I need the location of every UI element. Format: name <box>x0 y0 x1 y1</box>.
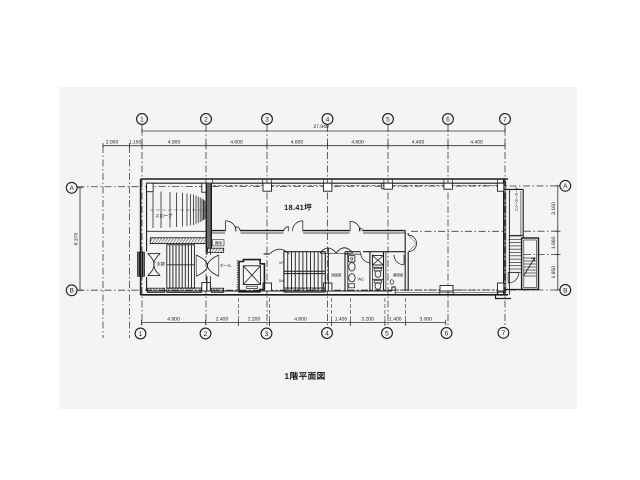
svg-text:UP: UP <box>279 261 284 265</box>
svg-text:洗面室: 洗面室 <box>331 273 342 278</box>
svg-text:1.150: 1.150 <box>129 140 142 146</box>
svg-text:6: 6 <box>446 116 450 123</box>
svg-text:DN: DN <box>279 279 284 283</box>
svg-text:27.940: 27.940 <box>313 124 329 130</box>
svg-text:4: 4 <box>326 116 330 123</box>
svg-text:2: 2 <box>204 331 208 338</box>
svg-text:4.600: 4.600 <box>294 316 307 322</box>
svg-text:4.600: 4.600 <box>351 140 364 146</box>
svg-text:6: 6 <box>445 330 449 337</box>
svg-text:1.400: 1.400 <box>389 316 402 322</box>
svg-text:3.160: 3.160 <box>551 202 557 215</box>
svg-text:1階平面図: 1階平面図 <box>284 371 325 381</box>
svg-text:2.400: 2.400 <box>216 316 229 322</box>
svg-text:6.370: 6.370 <box>74 233 80 246</box>
svg-text:3.000: 3.000 <box>419 316 432 322</box>
svg-text:2: 2 <box>204 116 208 123</box>
svg-text:4.400: 4.400 <box>412 140 425 146</box>
svg-text:3: 3 <box>265 331 269 338</box>
svg-text:5: 5 <box>386 116 390 123</box>
svg-text:1.400: 1.400 <box>335 316 348 322</box>
svg-text:3.200: 3.200 <box>361 316 374 322</box>
svg-text:2.200: 2.200 <box>248 316 261 322</box>
svg-text:ホール: ホール <box>220 263 232 268</box>
svg-text:4: 4 <box>325 330 329 337</box>
svg-text:1: 1 <box>140 116 144 123</box>
svg-text:18.41坪: 18.41坪 <box>284 203 312 212</box>
svg-text:4.400: 4.400 <box>470 140 483 146</box>
svg-text:4.600: 4.600 <box>230 140 243 146</box>
svg-text:5: 5 <box>385 330 389 337</box>
svg-text:3: 3 <box>265 116 269 123</box>
svg-text:2.000: 2.000 <box>106 140 119 146</box>
svg-text:1: 1 <box>139 331 143 338</box>
svg-text:A: A <box>69 185 74 192</box>
svg-text:スロープ: スロープ <box>155 213 173 218</box>
svg-text:7: 7 <box>503 116 507 123</box>
svg-text:風除: 風除 <box>215 241 223 246</box>
svg-text:7: 7 <box>502 330 506 337</box>
svg-text:B: B <box>69 288 74 295</box>
svg-text:玄関: 玄関 <box>157 261 165 266</box>
svg-text:4.900: 4.900 <box>167 316 180 322</box>
svg-text:1.880: 1.880 <box>551 236 557 249</box>
svg-text:メーターボックス: メーターボックス <box>514 186 518 212</box>
svg-text:4.900: 4.900 <box>168 140 181 146</box>
svg-text:湯沸室: 湯沸室 <box>393 273 404 278</box>
svg-text:B: B <box>563 287 568 294</box>
svg-text:4.600: 4.600 <box>291 140 304 146</box>
svg-text:1.850: 1.850 <box>551 266 557 279</box>
svg-text:A: A <box>563 183 568 190</box>
svg-text:WC: WC <box>358 277 365 282</box>
